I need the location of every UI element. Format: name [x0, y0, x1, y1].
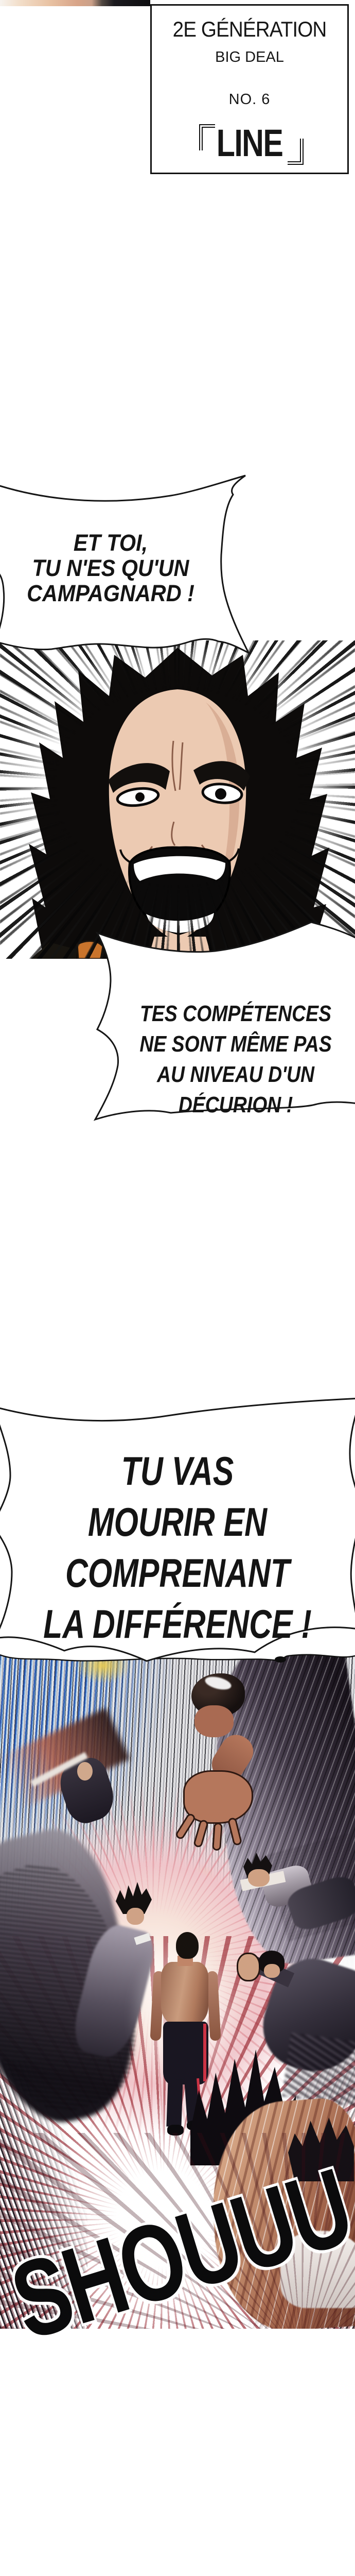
episode-number: NO. 6 [152, 91, 347, 108]
falling-attacker-head [77, 1762, 93, 1781]
webtoon-page: 2E GÉNÉRATION BIG DEAL NO. 6 LINE [0, 0, 355, 2576]
attacker-top-right-face [194, 1705, 234, 1737]
crouching-attacker-face [264, 1964, 280, 1978]
previous-panel-edge [0, 0, 150, 6]
series-subtitle: BIG DEAL [152, 49, 347, 66]
hero-pants [163, 2022, 208, 2084]
series-name: 2E GÉNÉRATION [159, 17, 340, 42]
speech-line: DÉCURION ! [127, 1090, 345, 1120]
speech-bubble-1-text: ET TOI, TU N'ES QU'UN CAMPAGNARD ! [25, 530, 196, 606]
attacker-upper-left-face [127, 1908, 144, 1925]
speech-line: TU N'ES QU'UN [25, 555, 196, 581]
crouching-attacker-legs-blur [282, 2032, 355, 2108]
hero-torso [161, 1962, 208, 2025]
speech-line: ET TOI, [25, 530, 196, 555]
speech-line: COMPRENANT [29, 1550, 326, 1597]
speech-bubble-1: ET TOI, TU N'ES QU'UN CAMPAGNARD ! [0, 471, 257, 665]
speech-line: MOURIR EN [29, 1499, 326, 1546]
speech-bubble-2-text: TES COMPÉTENCES NE SONT MÊME PAS AU NIVE… [127, 998, 345, 1120]
speed-lines-layer-2 [0, 640, 355, 959]
open-bracket-glyph [199, 124, 215, 150]
speech-bubble-2: TES COMPÉTENCES NE SONT MÊME PAS AU NIVE… [69, 918, 355, 1124]
hero-leg-left [166, 2079, 183, 2127]
speech-line: TU VAS [29, 1448, 326, 1495]
leaping-attacker-face [248, 1869, 270, 1887]
speech-line: NE SONT MÊME PAS [127, 1029, 345, 1059]
speech-bubble-3: TU VAS MOURIR EN COMPRENANT LA DIFFÉRENC… [0, 1387, 355, 1668]
speech-line: AU NIVEAU D'UN [127, 1059, 345, 1090]
episode-title-card: 2E GÉNÉRATION BIG DEAL NO. 6 LINE [150, 4, 349, 174]
speech-line: TES COMPÉTENCES [127, 998, 345, 1029]
speech-line: CAMPAGNARD ! [25, 581, 196, 606]
speech-line: LA DIFFÉRENCE ! [29, 1601, 326, 1648]
episode-title: LINE [171, 121, 328, 165]
hero-hair [176, 1932, 199, 1959]
crouching-attacker-fist [237, 1953, 260, 1981]
hero-pants-red-stripe [203, 2024, 206, 2081]
close-bracket-glyph [288, 139, 304, 165]
panel-shouting-face [0, 640, 355, 959]
